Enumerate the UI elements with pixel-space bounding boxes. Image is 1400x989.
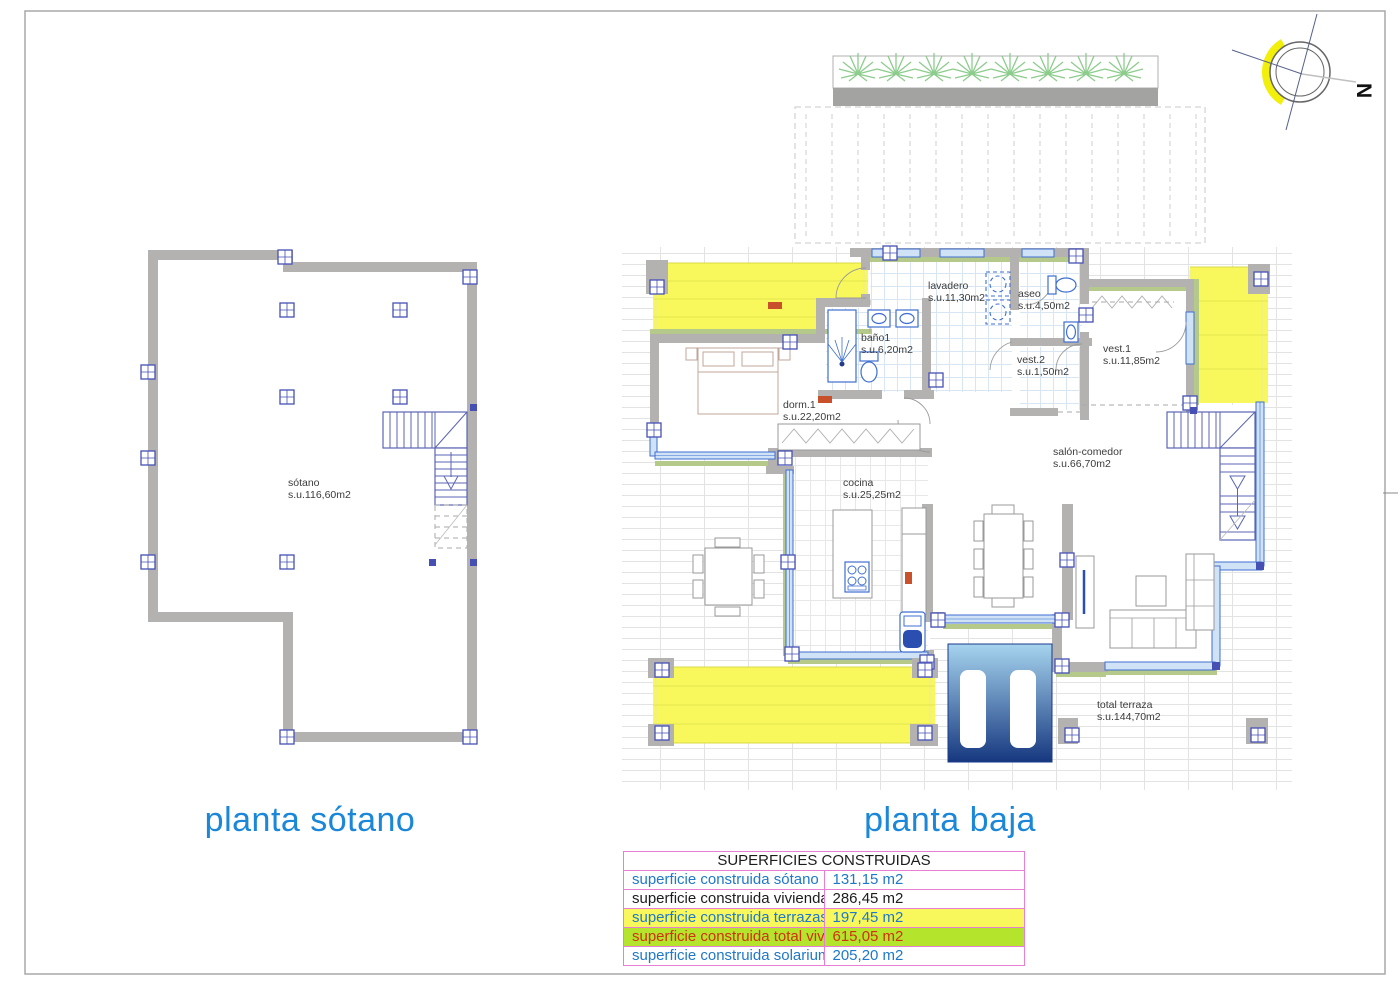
dining-table xyxy=(984,514,1023,598)
toilet xyxy=(1056,278,1076,292)
fridge xyxy=(902,508,926,534)
room-label-dorm1: dorm.1 xyxy=(783,399,816,411)
svg-text:s.u.1,50m2: s.u.1,50m2 xyxy=(1017,366,1069,378)
room-label-salon: salón-comedor xyxy=(1053,446,1123,458)
planter-wall xyxy=(833,88,1158,106)
svg-text:s.u.144,70m2: s.u.144,70m2 xyxy=(1097,711,1161,723)
areas-table: SUPERFICIES CONSTRUIDAS superficie const… xyxy=(623,851,1025,966)
cooktop xyxy=(845,562,869,592)
toilet xyxy=(861,362,877,382)
coffee-table xyxy=(1136,576,1166,606)
svg-text:s.u.25,25m2: s.u.25,25m2 xyxy=(843,489,901,501)
room-label-sotano: sótano xyxy=(288,477,320,489)
basement-title: planta sótano xyxy=(140,801,480,840)
planter-box xyxy=(833,56,1158,88)
room-label-aseo: aseo xyxy=(1018,288,1041,300)
room-label-terraza: total terraza xyxy=(1097,699,1153,711)
ground-floor-title: planta baja xyxy=(780,801,1120,840)
floor-plan-sheet: N xyxy=(0,0,1400,989)
north-compass: N xyxy=(1232,14,1375,130)
sofa xyxy=(1110,610,1196,648)
areas-table-title: SUPERFICIES CONSTRUIDAS xyxy=(624,852,1025,871)
svg-text:s.u.4,50m2: s.u.4,50m2 xyxy=(1018,300,1070,312)
pool-step xyxy=(1010,670,1036,748)
svg-text:s.u.11,85m2: s.u.11,85m2 xyxy=(1103,355,1160,367)
basement-plan: sótano s.u.116,60m2 xyxy=(141,250,477,744)
pool-step xyxy=(960,670,986,748)
roof-pergola xyxy=(795,53,1205,243)
ground-floor-plan: lavadero s.u.11,30m2 aseo s.u.4,50m2 bañ… xyxy=(622,246,1292,790)
room-label-lavadero: lavadero xyxy=(928,280,968,292)
svg-text:s.u.66,70m2: s.u.66,70m2 xyxy=(1053,458,1111,470)
table-row: superficie construida total vivienda 615… xyxy=(624,928,1025,947)
room-area-sotano: s.u.116,60m2 xyxy=(288,489,351,501)
table-row: superficie construida sótano 131,15 m2 xyxy=(624,871,1025,890)
sink-bowl xyxy=(903,630,922,648)
svg-text:s.u.6,20m2: s.u.6,20m2 xyxy=(861,344,913,356)
room-label-bano1: baño1 xyxy=(861,332,890,344)
sofa xyxy=(1186,554,1214,630)
north-label: N xyxy=(1352,83,1375,98)
svg-text:s.u.11,30m2: s.u.11,30m2 xyxy=(928,292,985,304)
pool xyxy=(948,644,1052,762)
compass-outer-circle xyxy=(1270,42,1330,102)
toilet-tank xyxy=(1048,276,1056,294)
table-row: superficie construida vivienda 286,45 m2 xyxy=(624,890,1025,909)
room-label-vest2: vest.2 xyxy=(1017,354,1045,366)
table-row: superficie construida solarium 205,20 m2 xyxy=(624,947,1025,966)
room-label-vest1: vest.1 xyxy=(1103,343,1131,355)
table-row: superficie construida terrazas 197,45 m2 xyxy=(624,909,1025,928)
svg-text:s.u.22,20m2: s.u.22,20m2 xyxy=(783,411,841,423)
outdoor-table xyxy=(705,548,752,605)
areas-table-header: SUPERFICIES CONSTRUIDAS xyxy=(624,852,1025,871)
room-label-cocina: cocina xyxy=(843,477,874,489)
